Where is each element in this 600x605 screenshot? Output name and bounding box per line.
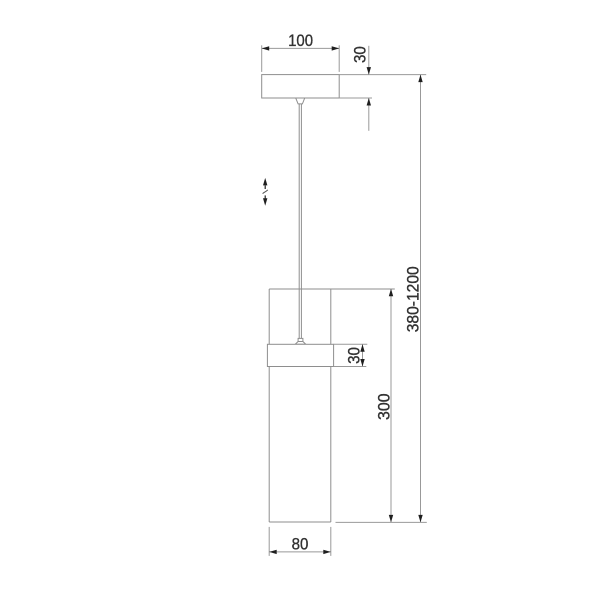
svg-text:100: 100 <box>288 31 313 50</box>
svg-text:30: 30 <box>345 347 364 364</box>
svg-text:380-1200: 380-1200 <box>403 266 422 332</box>
svg-text:300: 300 <box>374 393 393 420</box>
svg-text:80: 80 <box>292 535 309 554</box>
svg-text:30: 30 <box>350 46 369 63</box>
